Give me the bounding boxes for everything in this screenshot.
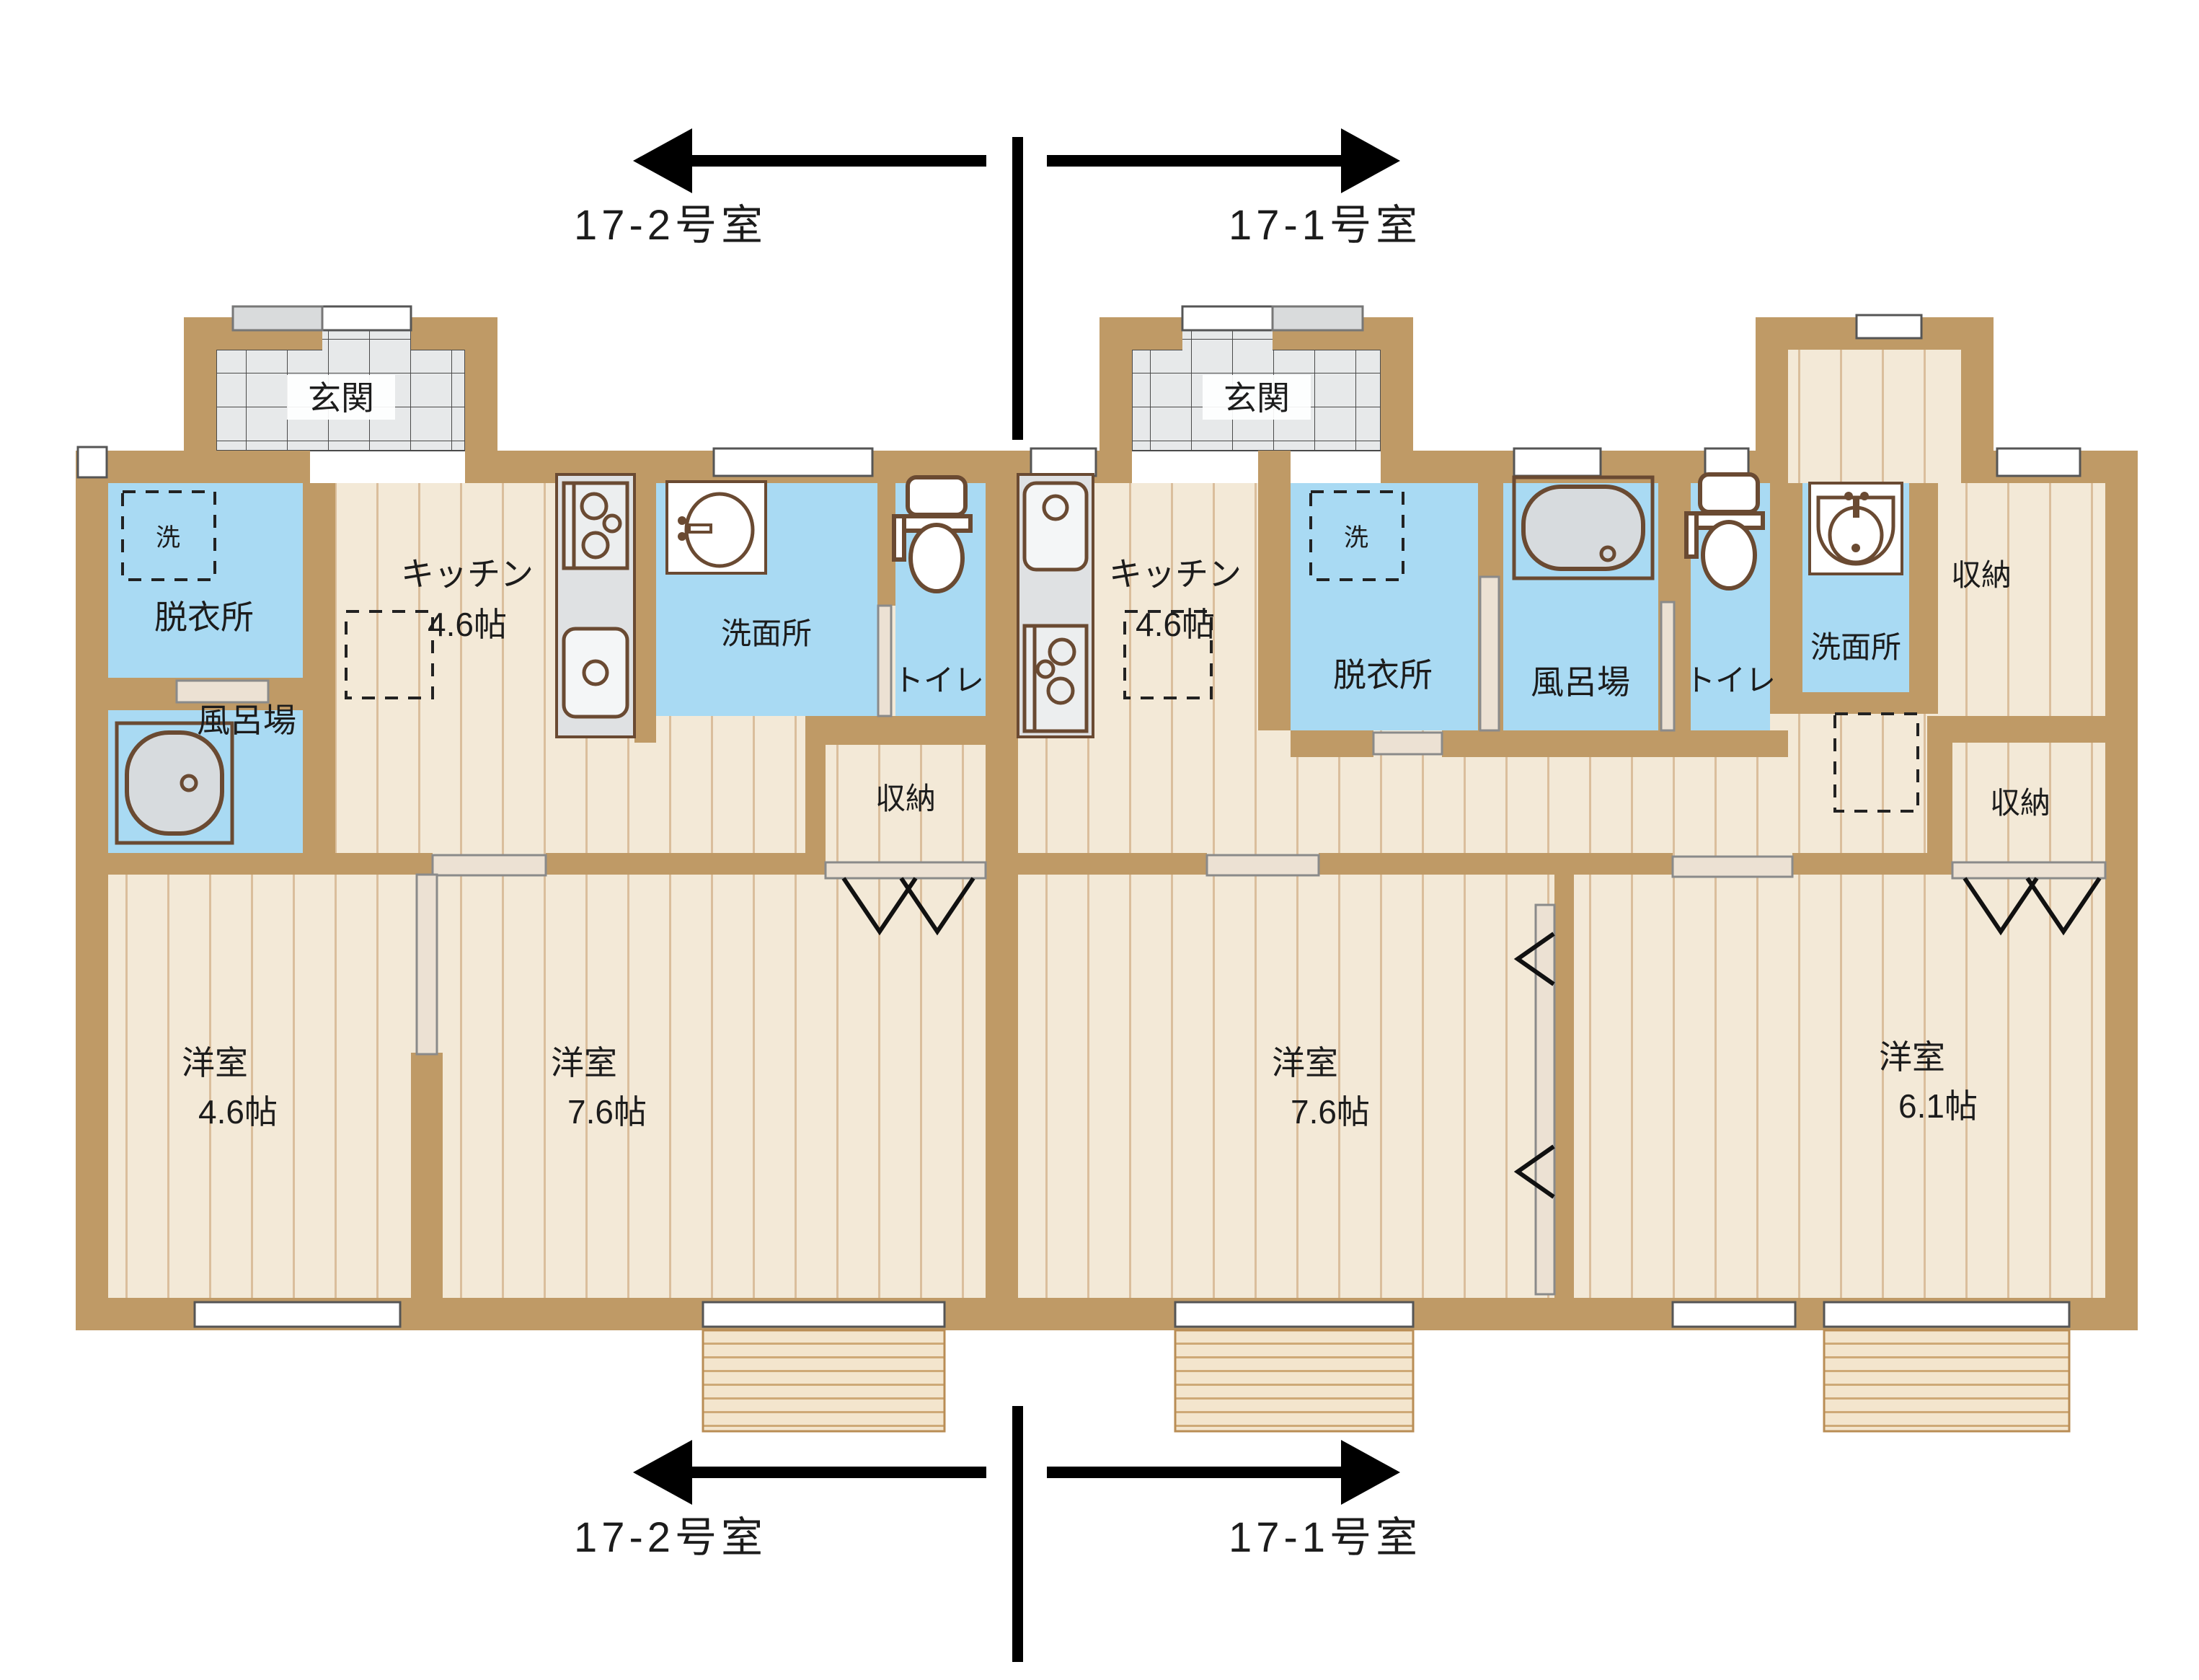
stove-icon: [564, 483, 627, 568]
datsuijo-label-left: 脱衣所: [154, 598, 254, 636]
arrow-right-top-head: [1341, 128, 1400, 193]
balconies: [703, 1330, 2069, 1431]
entry-door-left: [322, 306, 411, 330]
laundry-label-left: 洗: [156, 524, 180, 552]
datsuijo-label-right: 脱衣所: [1333, 656, 1433, 694]
door-toilet-left: [878, 606, 891, 716]
door-shuno-left: [826, 862, 986, 878]
washbasin-left: [667, 482, 766, 573]
bedroom2-size-left: 7.6帖: [567, 1093, 647, 1131]
unit-label-bottom-left: 17-2号室: [574, 1514, 767, 1561]
arrow-left-bottom-head: [633, 1440, 692, 1505]
senmenjo-label-left: 洗面所: [721, 616, 812, 650]
washbasin-right: [1810, 483, 1902, 574]
door-furoba-right: [1480, 577, 1499, 730]
floorplan-drawing: 玄関 玄関 洗 脱衣所 キッチン 4.6帖 洗面所 トイレ 風呂場 収納 洋室 …: [0, 0, 2199, 1680]
door-hall-to-61-right: [1673, 857, 1792, 877]
arrow-left-top-shaft: [686, 155, 986, 167]
entry-door-right: [1182, 306, 1273, 330]
bedroom1-size-right: 7.6帖: [1291, 1093, 1370, 1131]
bedroom1-label-right: 洋室: [1272, 1044, 1338, 1082]
bedroom2-label-right: 洋室: [1879, 1038, 1945, 1076]
door-datsuijo-right: [1373, 733, 1442, 754]
shuno-closet-label-right: 収納: [1990, 786, 2050, 820]
door-76-to-61-slider: [1536, 905, 1554, 1294]
genkan-label-right: 玄関: [1224, 379, 1290, 417]
kitchen-sink-icon: [564, 629, 627, 717]
arrow-right-bottom-head: [1341, 1440, 1400, 1505]
kitchen-counter-left: [557, 474, 634, 737]
unit-label-top-left: 17-2号室: [574, 202, 767, 249]
arrow-right-bottom-shaft: [1047, 1467, 1347, 1478]
kitchen-size-right: 4.6帖: [1136, 606, 1215, 643]
senmenjo-label-right: 洗面所: [1810, 630, 1901, 664]
toilet-label-right: トイレ: [1685, 663, 1776, 697]
kitchen-label-left: キッチン: [401, 555, 534, 593]
door-datsuijo-left: [177, 681, 268, 702]
divider-line-bottom: [1012, 1406, 1023, 1662]
furoba-label-right: 風呂場: [1531, 663, 1630, 701]
kitchen-size-left: 4.6帖: [428, 606, 507, 643]
genkan-label-left: 玄関: [308, 379, 374, 417]
furoba-label-left: 風呂場: [197, 702, 296, 739]
shuno-label-left: 収納: [875, 782, 936, 815]
bedroom2-size-right: 6.1帖: [1898, 1087, 1978, 1125]
shuno-hall-label-right: 収納: [1951, 558, 2012, 592]
bedroom2-label-left: 洋室: [551, 1044, 617, 1082]
divider-line-top: [1012, 137, 1023, 440]
bedroom1-size-left: 4.6帖: [198, 1093, 278, 1131]
toilet-label-left: トイレ: [893, 663, 984, 697]
kitchen-counter-right: [1018, 474, 1093, 737]
unit-label-top-right: 17-1号室: [1229, 202, 1422, 249]
arrow-left-top-head: [633, 128, 692, 193]
door-shuno-closet-right: [1952, 862, 2105, 878]
door-kitchen-to-bedroom-left: [433, 855, 546, 875]
bedroom1-label-left: 洋室: [182, 1044, 248, 1082]
arrow-left-bottom-shaft: [686, 1467, 986, 1478]
kitchen-label-right: キッチン: [1109, 555, 1242, 593]
unit-label-bottom-right: 17-1号室: [1229, 1514, 1422, 1561]
stove-icon: [1025, 626, 1087, 731]
door-bedroom-divider-left: [417, 875, 437, 1054]
arrow-right-top-shaft: [1047, 155, 1347, 167]
floorplan-canvas: 玄関 玄関 洗 脱衣所 キッチン 4.6帖 洗面所 トイレ 風呂場 収納 洋室 …: [0, 0, 2199, 1680]
door-toilet-right: [1661, 602, 1674, 730]
laundry-label-right: 洗: [1344, 524, 1368, 552]
door-hall-to-bedroom-right: [1207, 855, 1319, 875]
kitchen-sink-icon: [1025, 483, 1087, 570]
